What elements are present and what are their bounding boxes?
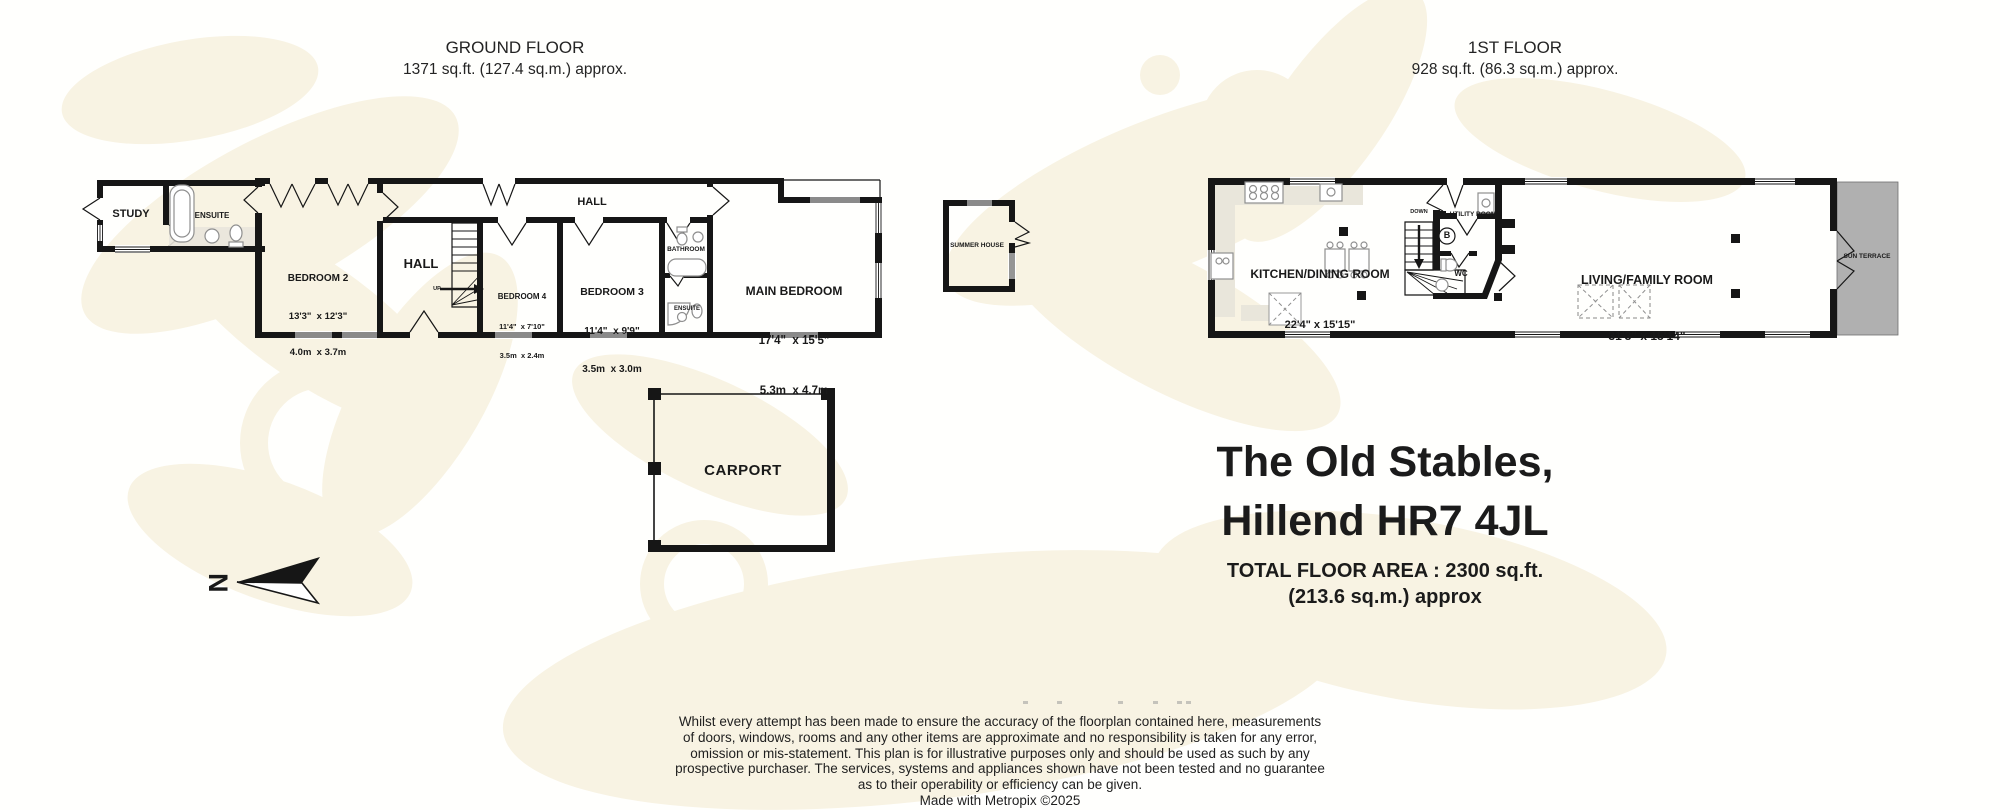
disclaimer-line3: omission or mis-statement. This plan is … (590, 746, 1410, 762)
room-label-hall-lower: HALL (404, 256, 439, 272)
watermark-dot (1153, 701, 1158, 704)
disclaimer: Whilst every attempt has been made to en… (590, 714, 1410, 809)
background-petal (1140, 55, 1180, 95)
room-label-kitchen: KITCHEN/DINING ROOM 22'4" x 15'15" (1250, 231, 1389, 369)
main-bedroom-name: MAIN BEDROOM (746, 283, 843, 300)
total-area-line1: TOTAL FLOOR AREA : 2300 sq.ft. (1227, 560, 1543, 583)
room-label-main-bedroom: MAIN BEDROOM 17'4" x 15'5" 5.3m x 4.7m (746, 249, 843, 432)
room-label-utility: UTILITY ROOM (1450, 211, 1496, 219)
room-label-bedroom2: BEDROOM 2 13'3" x 12'3" 4.0m x 3.7m (288, 248, 349, 384)
ground-floor-title-line1: GROUND FLOOR (403, 38, 627, 58)
disclaimer-line2: of doors, windows, rooms and any other i… (590, 730, 1410, 746)
total-area-line2: (213.6 sq.m.) approx (1288, 586, 1481, 609)
kitchen-name: KITCHEN/DINING ROOM (1250, 266, 1389, 283)
bedroom2-imperial: 13'3" x 12'3" (288, 311, 349, 323)
watermark-dot (1118, 701, 1123, 704)
room-label-bathroom: BATHROOM (667, 246, 705, 254)
ground-floor-title-line2: 1371 sq.ft. (127.4 sq.m.) approx. (403, 61, 627, 79)
main-bedroom-metric: 5.3m x 4.7m (746, 383, 843, 399)
address-line2: Hillend HR7 4JL (1221, 497, 1548, 546)
disclaimer-line5: as to their operability or efficiency ca… (590, 777, 1410, 793)
bedroom3-name: BEDROOM 3 (580, 286, 644, 299)
first-floor-title-line2: 928 sq.ft. (86.3 sq.m.) approx. (1412, 61, 1619, 79)
room-label-living: LIVING/FAMILY ROOM 31'3" x 15'14" (1581, 233, 1713, 382)
summer-house-label: SUMMER HOUSE (950, 242, 1004, 250)
boiler-label: B (1444, 230, 1451, 241)
first-floor-title-line1: 1ST FLOOR (1412, 38, 1619, 58)
ground-floor-plan (70, 165, 1030, 355)
bedroom4-metric: 3.5m x 2.4m (498, 351, 546, 360)
room-label-bedroom3: BEDROOM 3 11'4" x 9'9" 3.5m x 3.0m (580, 260, 644, 403)
stairs-up-label: UP (433, 286, 441, 293)
bedroom2-metric: 4.0m x 3.7m (288, 347, 349, 359)
room-label-ensuite: ENSUITE (195, 211, 230, 221)
sun-terrace-label: SUN TERRACE (1844, 253, 1891, 261)
disclaimer-line4: prospective purchaser. The services, sys… (590, 761, 1410, 777)
bedroom4-name: BEDROOM 4 (498, 292, 546, 302)
watermark-dot (1186, 701, 1191, 704)
room-label-hall-upper: HALL (577, 196, 606, 210)
first-floor-title: 1ST FLOOR 928 sq.ft. (86.3 sq.m.) approx… (1412, 38, 1619, 79)
living-name: LIVING/FAMILY ROOM (1581, 271, 1713, 290)
bedroom3-metric: 3.5m x 3.0m (580, 364, 644, 377)
floorplan-page: GROUND FLOOR 1371 sq.ft. (127.4 sq.m.) a… (0, 0, 2000, 810)
bedroom4-imperial: 11'4" x 7'10" (498, 322, 546, 331)
stairs-down-label: DOWN (1410, 209, 1427, 216)
disclaimer-line1: Whilst every attempt has been made to en… (590, 714, 1410, 730)
room-label-bedroom4: BEDROOM 4 11'4" x 7'10" 3.5m x 2.4m (498, 272, 546, 381)
room-label-ensuite2: ENSUITE (674, 306, 700, 314)
watermark-dot (1057, 701, 1062, 704)
main-bedroom-imperial: 17'4" x 15'5" (746, 333, 843, 349)
kitchen-imperial: 22'4" x 15'15" (1250, 318, 1389, 334)
north-label: N (200, 573, 234, 593)
watermark-dot (1023, 701, 1028, 704)
watermark-dot (1177, 701, 1182, 704)
address-line1: The Old Stables, (1217, 438, 1554, 487)
living-imperial: 31'3" x 15'14" (1581, 327, 1713, 345)
ground-floor-title: GROUND FLOOR 1371 sq.ft. (127.4 sq.m.) a… (403, 38, 627, 79)
bedroom3-imperial: 11'4" x 9'9" (580, 326, 644, 339)
room-label-study: STUDY (112, 208, 149, 222)
bedroom2-name: BEDROOM 2 (288, 273, 349, 286)
carport-label: CARPORT (704, 462, 782, 481)
room-label-wc: WC (1454, 269, 1467, 279)
disclaimer-credit: Made with Metropix ©2025 (590, 793, 1410, 809)
